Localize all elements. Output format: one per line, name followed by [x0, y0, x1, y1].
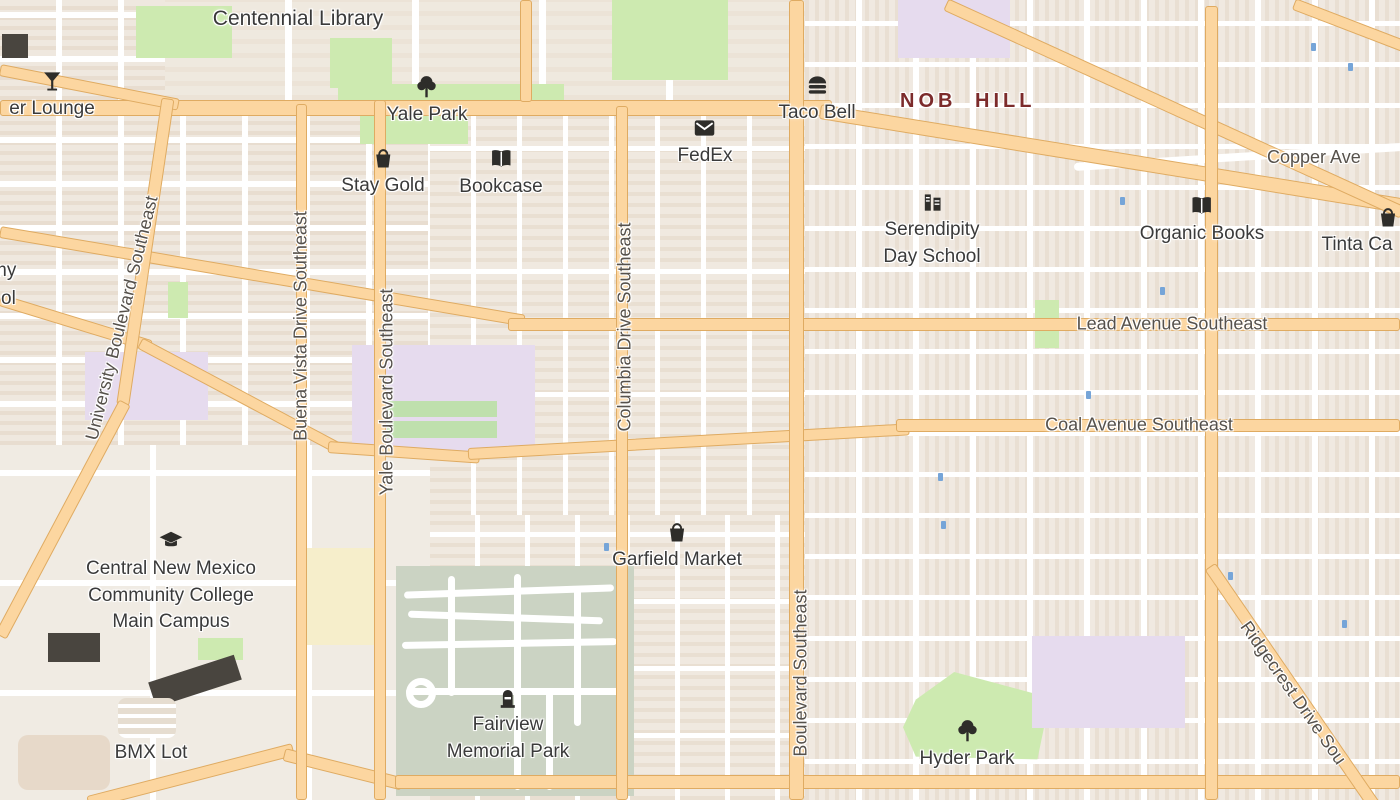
- pool: [1348, 63, 1353, 71]
- road-south-horizontal: [395, 775, 1400, 789]
- poi-bmx-lot: BMX Lot: [115, 740, 188, 767]
- poi-label: Garfield Market: [612, 547, 742, 574]
- road-east-vertical: [1205, 6, 1218, 800]
- poi-hyder-park: Hyder Park: [919, 718, 1014, 773]
- poi-centennial-library: Centennial Library: [213, 4, 383, 33]
- map-canvas[interactable]: University Boulevard Southeast Buena Vis…: [0, 0, 1400, 800]
- poi-label: ol: [1, 286, 16, 313]
- building: [2, 34, 28, 58]
- poi-taco-bell: Taco Bell: [778, 72, 855, 127]
- graduation-cap-icon: [158, 528, 184, 554]
- building: [18, 735, 110, 790]
- pool: [938, 473, 943, 481]
- building: [48, 633, 100, 662]
- poi-organic-books: Organic Books: [1140, 193, 1265, 248]
- bmx-track: [118, 698, 176, 738]
- poi-label: Serendipity Day School: [883, 217, 980, 270]
- pool: [1342, 620, 1347, 628]
- poi-label: BMX Lot: [115, 740, 188, 767]
- tree-icon: [414, 74, 440, 100]
- street-label-columbia-drive: Columbia Drive Southeast: [615, 222, 636, 431]
- poi-label: Yale Park: [387, 102, 468, 129]
- tree-icon: [954, 718, 980, 744]
- poi-yale-park: Yale Park: [387, 74, 468, 129]
- campus-block: [298, 548, 380, 645]
- road-campus-stub: [520, 0, 532, 102]
- poi-serendipity-day-school: Serendipity Day School: [883, 189, 980, 270]
- open-book-icon: [1189, 193, 1215, 219]
- poi-garfield-market: Garfield Market: [612, 519, 742, 574]
- poi-fedex: FedEx: [678, 115, 733, 170]
- park-area: [612, 0, 728, 80]
- park-area: [198, 638, 243, 660]
- street-label-lead-avenue: Lead Avenue Southeast: [1077, 314, 1268, 335]
- school-grounds: [1032, 636, 1185, 728]
- shopping-basket-icon: [1375, 204, 1400, 230]
- poi-label: Organic Books: [1140, 221, 1265, 248]
- neighborhood-label-nob-hill: NOB HILL: [900, 90, 1035, 113]
- poi-tinta: Tinta Ca: [1313, 204, 1400, 259]
- poi-label: Central New Mexico Community College Mai…: [86, 556, 256, 636]
- poi-fairview-memorial-park: Fairview Memorial Park: [447, 684, 569, 765]
- burger-icon: [804, 72, 830, 98]
- road-buena-vista-drive: [296, 104, 307, 800]
- street-label-buena-vista-drive: Buena Vista Drive Southeast: [291, 211, 312, 441]
- poi-label: Tinta Ca: [1321, 232, 1392, 259]
- pool: [1120, 197, 1125, 205]
- shopping-basket-icon: [664, 519, 690, 545]
- pool: [941, 521, 946, 529]
- poi-label: Fairview Memorial Park: [447, 712, 569, 765]
- poi-label: Taco Bell: [778, 100, 855, 127]
- poi-label: Bookcase: [459, 174, 542, 201]
- poi-label: Hyder Park: [919, 746, 1014, 773]
- poi-label: Centennial Library: [213, 4, 383, 33]
- mail-envelope-icon: [692, 115, 718, 141]
- cocktail-glass-icon: [39, 68, 65, 94]
- pool: [1160, 287, 1165, 295]
- park-area: [330, 38, 392, 88]
- poi-partial-label-1: my: [0, 258, 16, 285]
- pool: [1311, 43, 1316, 51]
- poi-label: FedEx: [678, 143, 733, 170]
- poi-partial-label-2: ol: [1, 286, 16, 313]
- poi-er-lounge: er Lounge: [9, 68, 95, 123]
- memorial-stone-icon: [495, 684, 521, 710]
- street-label-copper-avenue: Copper Ave: [1267, 147, 1361, 168]
- pool: [1228, 572, 1233, 580]
- sports-pitch: [387, 401, 497, 417]
- poi-stay-gold: Stay Gold: [341, 145, 424, 200]
- open-book-icon: [488, 146, 514, 172]
- school-building-icon: [919, 189, 945, 215]
- poi-label: er Lounge: [9, 96, 95, 123]
- street-label-coal-avenue: Coal Avenue Southeast: [1045, 415, 1233, 436]
- poi-label: Stay Gold: [341, 173, 424, 200]
- poi-cnm-main-campus: Central New Mexico Community College Mai…: [86, 528, 256, 636]
- shopping-basket-icon: [370, 145, 396, 171]
- poi-bookcase: Bookcase: [459, 146, 542, 201]
- park-area: [168, 282, 188, 318]
- pool: [1086, 391, 1091, 399]
- pool: [604, 543, 609, 551]
- sports-pitch: [387, 421, 497, 438]
- street-label-boulevard-southeast: Boulevard Southeast: [791, 589, 812, 756]
- road-columbia-drive: [616, 106, 628, 800]
- street-label-yale-boulevard: Yale Boulevard Southeast: [377, 289, 398, 496]
- poi-label: my: [0, 258, 16, 285]
